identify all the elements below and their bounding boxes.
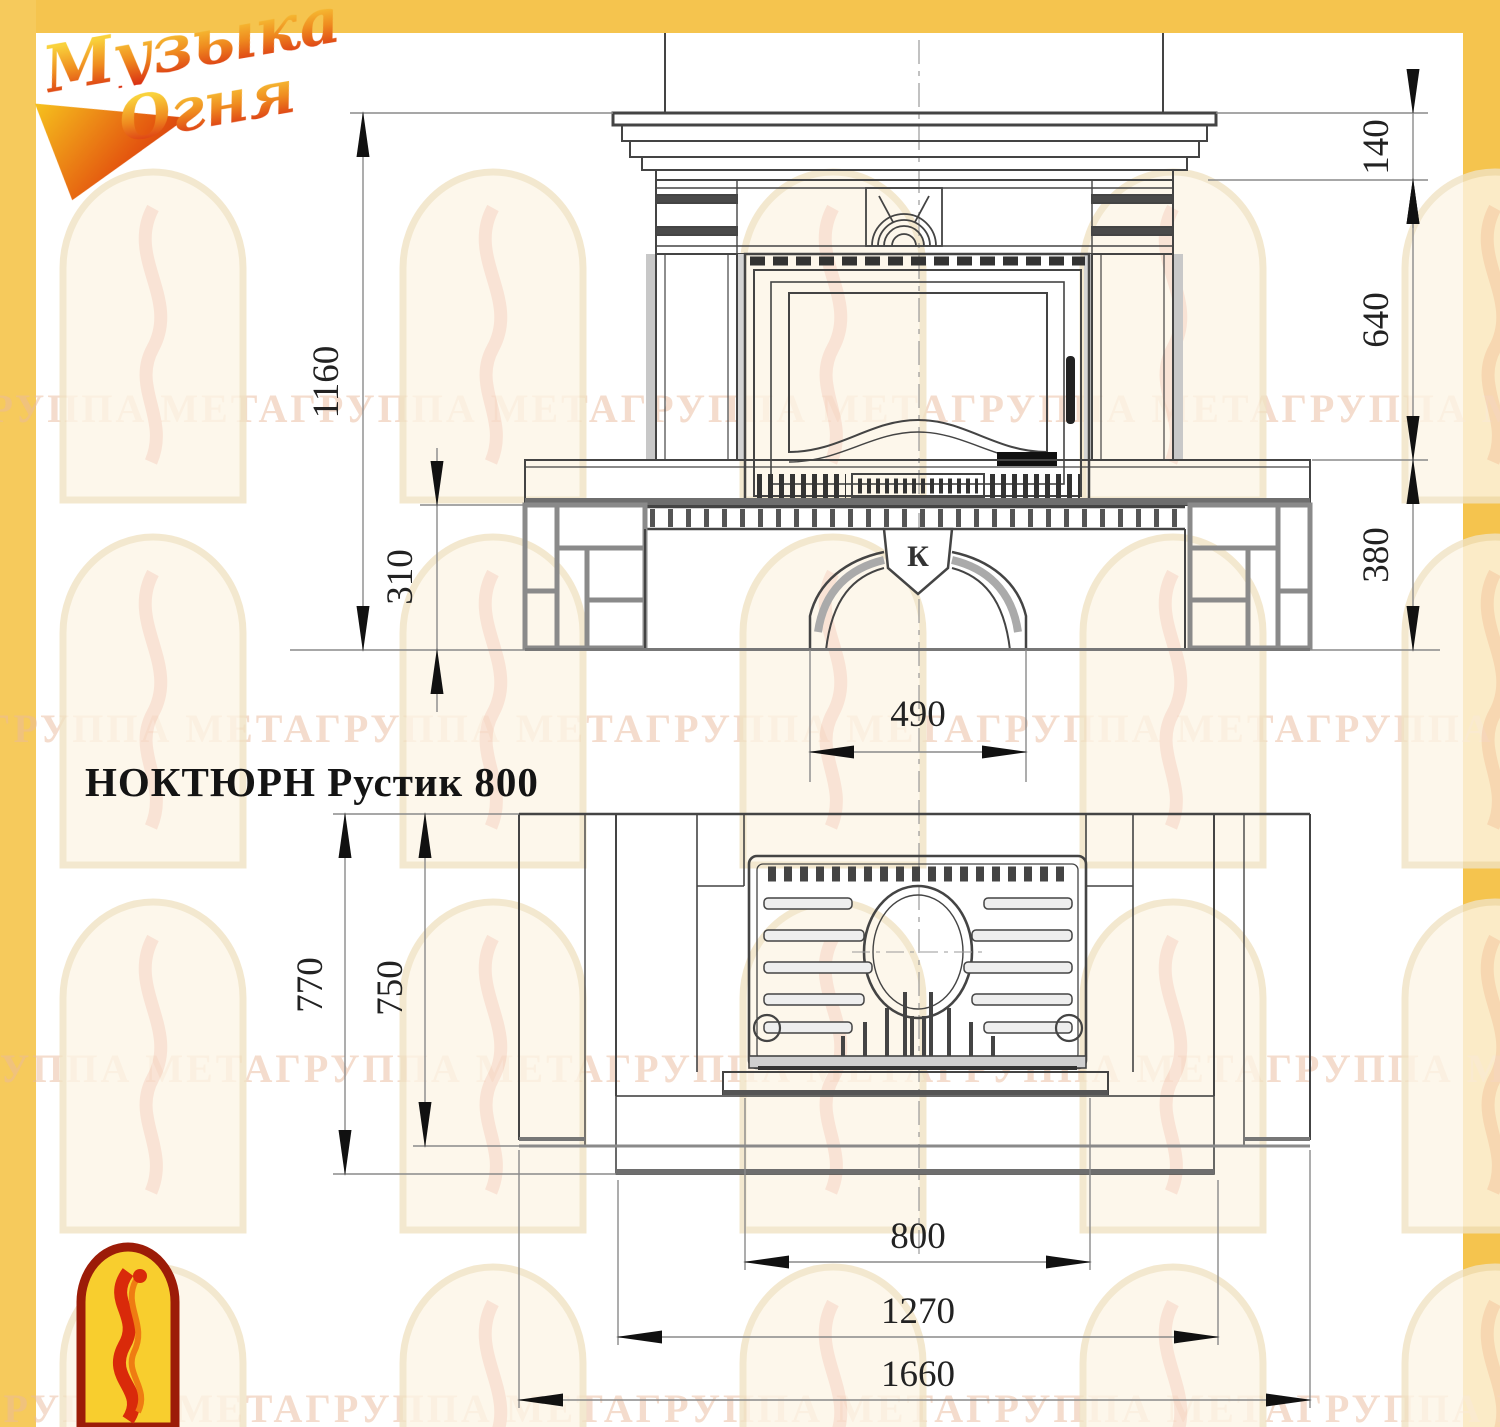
dim-label-800: 800 [890, 1216, 946, 1257]
mantel-cornice [613, 113, 1216, 180]
left-column [646, 254, 745, 460]
dim-label-640: 640 [1356, 292, 1397, 348]
dim-label-490: 490 [890, 694, 946, 735]
door-handle [1066, 356, 1075, 424]
arch-emblem [76, 1240, 180, 1427]
brand-logo: Музыка Огня [0, 0, 330, 228]
model-title: НОКТЮРН Рустик 800 [85, 758, 539, 806]
dentil-row [645, 507, 1185, 529]
dim-label-1660: 1660 [881, 1354, 955, 1395]
dim-label-380: 380 [1356, 527, 1397, 583]
dim-label-770: 770 [290, 957, 331, 1013]
fireplace-technical-drawing: К [0, 0, 1500, 1427]
keystone-letter: К [907, 540, 929, 573]
page: ГРУППА МЕТАГРУППА МЕТАГРУППА МЕТАГРУППА … [0, 0, 1500, 1427]
chimney [665, 33, 1163, 113]
dim-label-140: 140 [1356, 119, 1397, 175]
dim-label-1270: 1270 [881, 1291, 955, 1332]
flame-figure-icon [76, 1240, 180, 1427]
dim-label-310: 310 [380, 549, 421, 605]
dim-label-750: 750 [370, 960, 411, 1016]
dim-label-1160: 1160 [306, 346, 347, 419]
